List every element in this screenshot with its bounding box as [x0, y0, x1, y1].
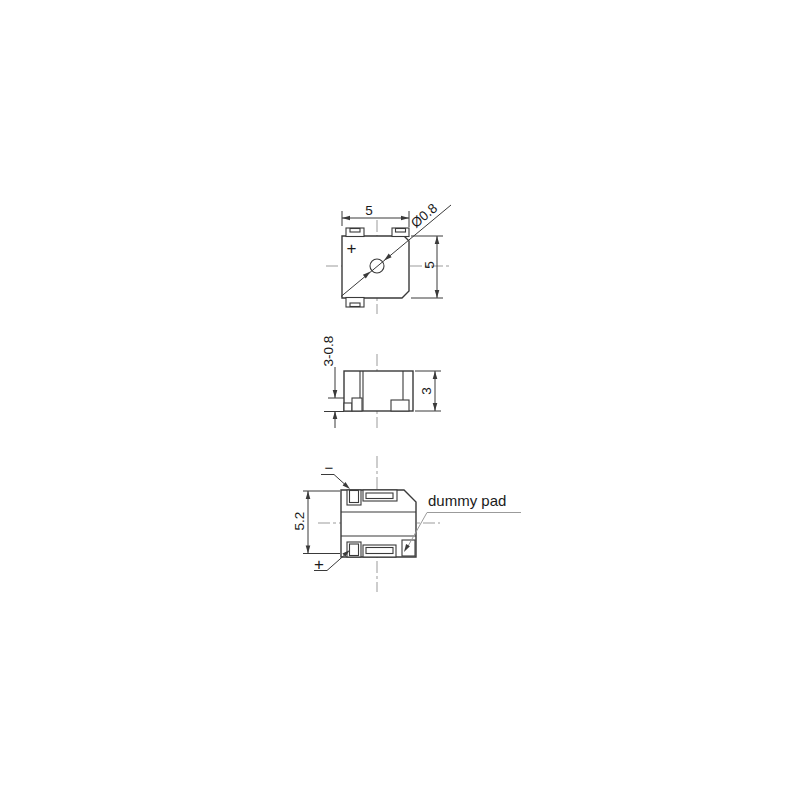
minus-callout: −: [321, 459, 350, 489]
arrowhead: [306, 491, 311, 499]
arrowhead: [433, 403, 438, 411]
dim-side-height-label: 3: [419, 387, 434, 395]
top-elongated-pad-inner: [366, 493, 393, 499]
arrowhead: [342, 216, 350, 221]
side-pad-left-step: [344, 403, 352, 411]
dummy-pad-label: dummy pad: [428, 492, 506, 509]
negative-pad-inner: [350, 491, 359, 503]
arrowhead: [433, 371, 438, 379]
arrowhead: [435, 236, 440, 244]
technical-drawing: + 5 5 Ø0.8: [0, 0, 800, 800]
side-view: [344, 354, 413, 428]
arrowhead: [333, 390, 338, 398]
arrowhead: [333, 411, 338, 419]
drawing-canvas: + 5 5 Ø0.8: [0, 0, 800, 800]
top-view-plus-mark: +: [347, 239, 357, 258]
minus-mark: −: [325, 459, 334, 476]
dim-bottom-height-label: 5.2: [292, 512, 307, 531]
dimension-side-pad: 3-0.8: [321, 336, 344, 428]
dim-side-pad-label: 3-0.8: [321, 336, 336, 367]
side-pad-left: [352, 398, 362, 411]
dim-top-height-label: 5: [422, 261, 437, 269]
hole-diameter-label: Ø0.8: [408, 200, 440, 230]
arrowhead: [306, 546, 311, 554]
dim-top-width-label: 5: [365, 203, 373, 218]
side-pad-right: [391, 400, 409, 411]
bottom-elongated-pad-inner: [366, 548, 393, 554]
dimension-bottom-height: 5.2: [292, 491, 340, 554]
dimension-side-height: 3: [415, 371, 441, 411]
arrowhead: [435, 290, 440, 298]
dimension-top-width: 5: [342, 203, 409, 227]
top-tab-right-notch: [396, 229, 406, 233]
top-tab-left-notch: [350, 229, 360, 233]
bottom-tab-notch: [350, 303, 360, 307]
dummy-pad: [402, 540, 415, 556]
plus-mark: +: [314, 555, 324, 574]
positive-pad-inner: [350, 544, 359, 556]
dimension-top-height: 5: [411, 236, 443, 298]
dummy-pad-callout: dummy pad: [404, 492, 521, 552]
